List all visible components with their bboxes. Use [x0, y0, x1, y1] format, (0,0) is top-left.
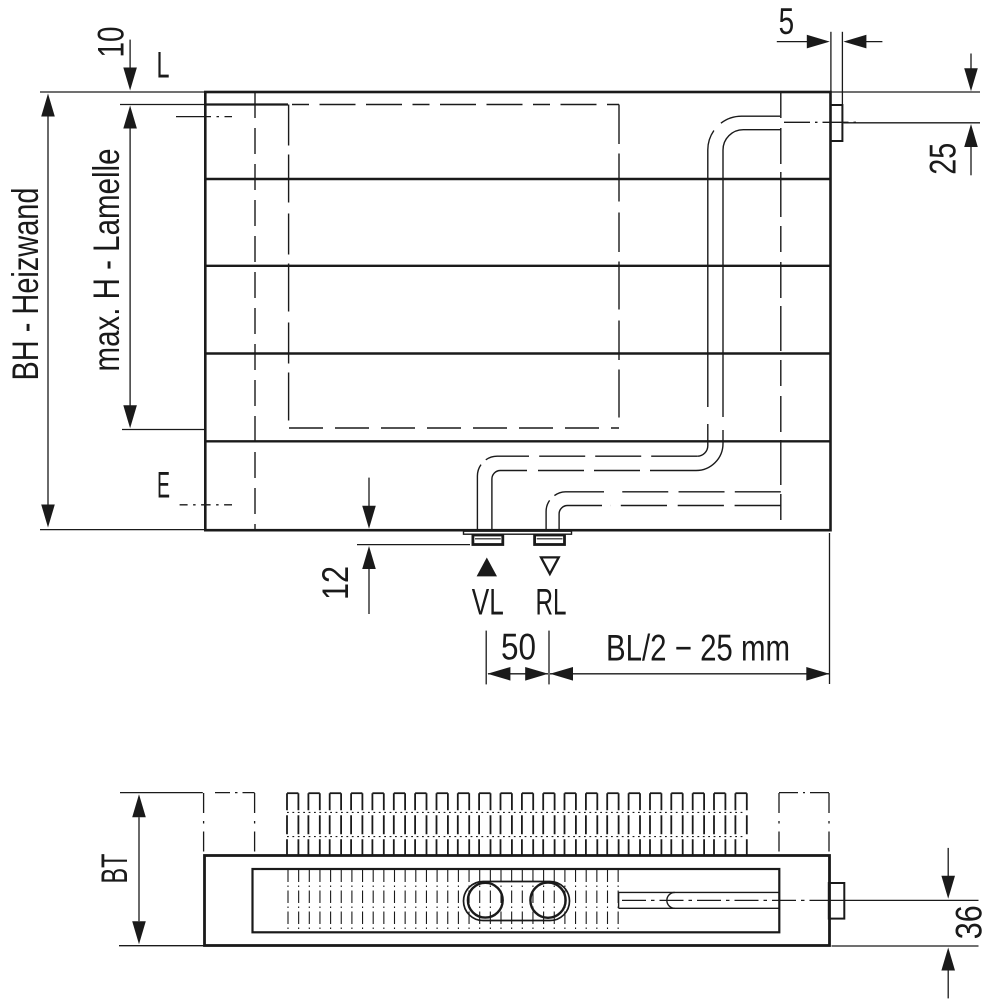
svg-text:VL: VL [472, 582, 504, 623]
svg-text:L: L [157, 45, 170, 86]
svg-text:BL/2 − 25 mm: BL/2 − 25 mm [606, 628, 790, 669]
svg-text:RL: RL [536, 582, 567, 623]
svg-text:25: 25 [923, 143, 964, 175]
svg-text:E: E [157, 465, 170, 506]
svg-text:5: 5 [779, 1, 795, 42]
svg-text:max. H - Lamelle: max. H - Lamelle [86, 149, 127, 372]
svg-text:BT: BT [94, 854, 135, 884]
svg-text:BH - Heizwand: BH - Heizwand [5, 188, 46, 381]
svg-text:36: 36 [949, 905, 990, 939]
svg-text:12: 12 [315, 566, 356, 600]
svg-text:10: 10 [90, 26, 131, 57]
svg-text:50: 50 [501, 627, 536, 668]
